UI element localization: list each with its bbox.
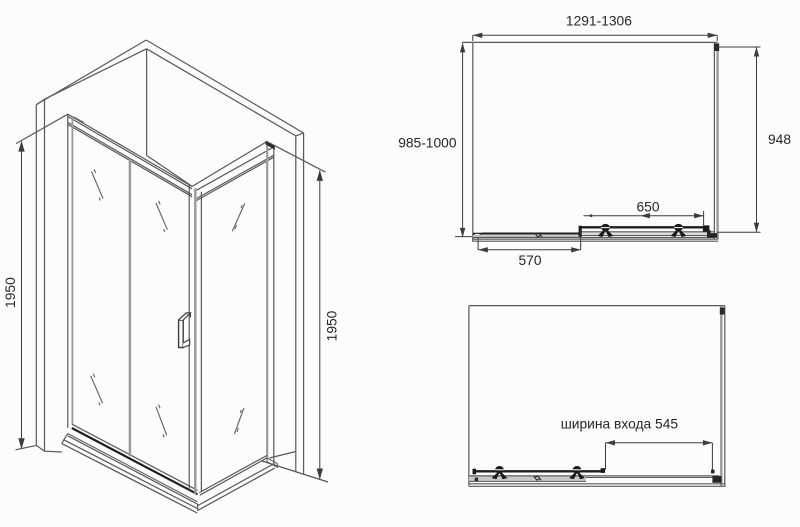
svg-text:650: 650 [636, 199, 659, 214]
svg-text:570: 570 [518, 253, 541, 268]
svg-text:985-1000: 985-1000 [398, 135, 457, 150]
svg-text:1291-1306: 1291-1306 [566, 14, 632, 29]
svg-text:1950: 1950 [3, 277, 18, 308]
svg-text:1950: 1950 [325, 310, 340, 341]
svg-text:948: 948 [768, 132, 791, 147]
svg-text:ширина входа 545: ширина входа 545 [561, 417, 679, 432]
